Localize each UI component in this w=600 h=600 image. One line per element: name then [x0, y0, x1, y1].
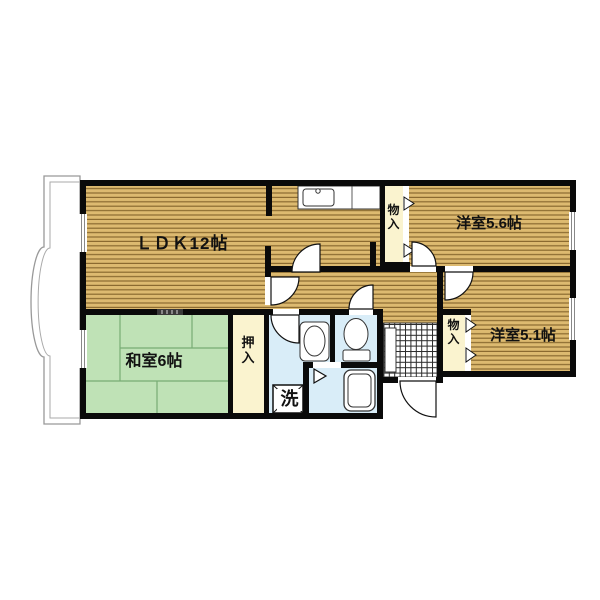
room-label-western-5-6: 洋室5.6帖	[424, 215, 554, 232]
balcony	[31, 176, 80, 424]
label-storage-upper: 物入	[386, 204, 401, 232]
floorplan-canvas: ＬＤＫ12帖 洋室5.6帖 洋室5.1帖 和室6帖 押入 物入 物入 洗	[0, 0, 600, 600]
window-ldk	[79, 214, 87, 252]
entrance-genkan	[383, 323, 437, 377]
door-arc-entrance	[400, 381, 436, 417]
label-laundry: 洗	[277, 389, 302, 411]
room-label-ldk: ＬＤＫ12帖	[117, 234, 247, 254]
window-japanese-room	[79, 330, 87, 368]
room-label-western-5-1: 洋室5.1帖	[458, 327, 588, 344]
floorplan-svg	[0, 0, 600, 600]
label-closet-oshiire: 押入	[240, 336, 256, 366]
kitchen-counter	[298, 186, 380, 209]
room-label-japanese: 和室6帖	[89, 353, 219, 371]
faucet-icon	[316, 189, 320, 193]
shoe-cabinet	[385, 328, 396, 372]
sliding-door-marker	[157, 309, 183, 315]
toilet-fixture	[343, 319, 370, 362]
bathtub	[344, 370, 375, 411]
label-storage-lower: 物入	[446, 319, 461, 347]
wash-basin	[300, 322, 329, 361]
window-western-5-6	[569, 212, 577, 250]
